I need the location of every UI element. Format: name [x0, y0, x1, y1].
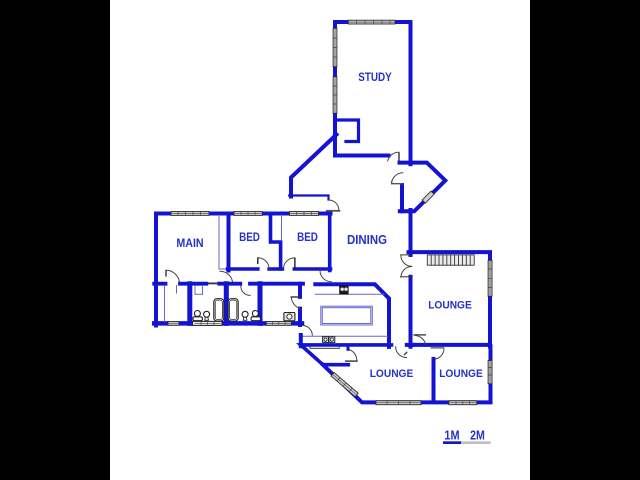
- svg-text:LOUNGE: LOUNGE: [428, 300, 472, 312]
- svg-text:2M: 2M: [470, 429, 485, 443]
- svg-text:DINING: DINING: [347, 232, 387, 247]
- svg-text:LOUNGE: LOUNGE: [370, 368, 414, 380]
- svg-text:1M: 1M: [444, 429, 459, 443]
- svg-text:MAIN: MAIN: [176, 238, 203, 250]
- svg-text:BED: BED: [297, 232, 318, 244]
- svg-text:STUDY: STUDY: [358, 72, 392, 84]
- svg-text:BED: BED: [239, 232, 260, 244]
- svg-text:LOUNGE: LOUNGE: [439, 368, 483, 380]
